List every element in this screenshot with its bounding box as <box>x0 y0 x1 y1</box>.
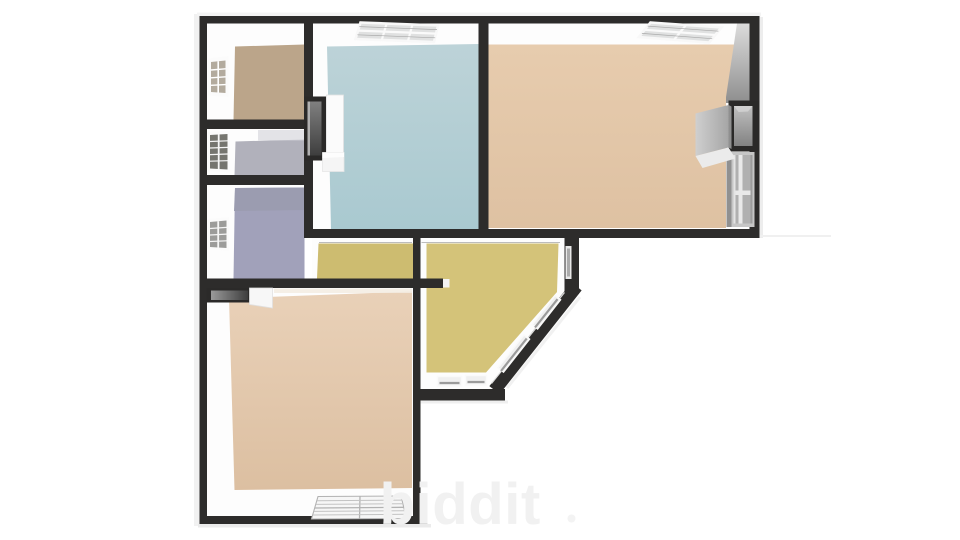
svg-text:biddit: biddit <box>380 472 541 537</box>
